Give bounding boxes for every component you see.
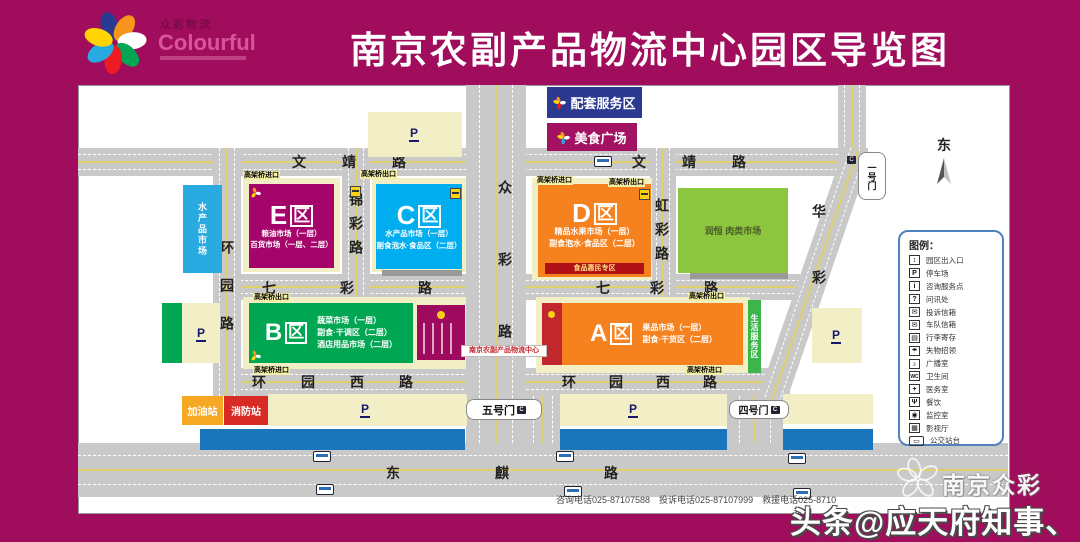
gate-5-label: 五号门 bbox=[482, 402, 515, 418]
compass-east-label: 东 bbox=[933, 135, 955, 155]
park-entrance-icon: ↕ bbox=[909, 255, 920, 265]
zone-e-line1: 粮油市场（一层） bbox=[262, 228, 322, 239]
road-label-dongqi: 东麒路 bbox=[386, 466, 713, 480]
legend-item: ♪广播室 bbox=[909, 357, 1002, 370]
bus-stop-icon bbox=[316, 484, 334, 495]
legend-item: ↕园区出入口 bbox=[909, 254, 1002, 267]
legend-item: WC卫生间 bbox=[909, 370, 1002, 383]
bus-platform-icon: ▭ bbox=[909, 436, 924, 446]
company-sign-box bbox=[417, 305, 465, 360]
gate-4-label: 四号门 bbox=[739, 402, 769, 417]
legend-title: 图例： bbox=[909, 237, 1002, 252]
parking-icon: P bbox=[360, 403, 370, 418]
gate-1-label: 一号门 bbox=[866, 163, 879, 190]
aquatic-market-label: 水产品市场 bbox=[196, 202, 209, 257]
page-title: 南京农副产品物流中心园区导览图 bbox=[300, 20, 1000, 74]
colourful-mini-logo-icon bbox=[557, 131, 570, 144]
cinema-hall-icon: ▦ bbox=[909, 423, 920, 433]
ramp-entry-label: 高架桥进口 bbox=[243, 171, 280, 180]
road-label-huanyuan: 环园路 bbox=[220, 240, 234, 354]
camera-icon: C bbox=[847, 156, 856, 164]
bus-platform-bar bbox=[200, 429, 465, 450]
ramp-exit-label: 高架桥出口 bbox=[253, 293, 290, 302]
broadcast-room-icon: ♪ bbox=[909, 359, 920, 369]
ramp-exit-label: 高架桥出口 bbox=[360, 170, 397, 179]
bridge-icon bbox=[450, 188, 461, 199]
bridge-icon bbox=[639, 189, 650, 200]
company-sign-text-marks bbox=[423, 323, 459, 354]
bus-stop-icon bbox=[788, 453, 806, 464]
food-plaza-box: 美食广场 bbox=[547, 123, 637, 151]
ramp-entry-label: 高架桥进口 bbox=[536, 176, 573, 185]
zone-a: A区 果品市场（一层） 副食·干货区（二层） bbox=[542, 303, 743, 365]
gate-4: 四号门C bbox=[729, 400, 789, 419]
parking-lot-icon: P bbox=[909, 268, 920, 278]
gate-1: 一号门 bbox=[858, 152, 886, 200]
zone-a-line1: 果品市场（一层） bbox=[642, 322, 706, 334]
shadow-runheng bbox=[690, 273, 788, 279]
center-banner: 南京农副产品物流中心 bbox=[461, 345, 547, 357]
info-service-icon: i bbox=[909, 281, 920, 291]
legend-item: ◉监控室 bbox=[909, 409, 1002, 422]
legend-item: ✉车队信箱 bbox=[909, 318, 1002, 331]
zone-b: B区 蔬菜市场（一层） 副食·干调区（二层） 酒店用品市场（二层） bbox=[249, 303, 413, 363]
gas-station: 加油站 bbox=[182, 396, 223, 425]
colourful-flower-icon bbox=[82, 61, 148, 78]
bus-platform-bar bbox=[560, 429, 727, 450]
fire-station: 消防站 bbox=[224, 396, 268, 425]
bus-stop-icon bbox=[594, 156, 612, 167]
camera-icon: C bbox=[771, 406, 780, 414]
aquatic-market: 水产品市场 bbox=[183, 185, 222, 273]
parking-west-green-strip bbox=[162, 303, 182, 363]
monitor-room-icon: ◉ bbox=[909, 410, 920, 420]
watermark-byline: 头条@应天府知事、 bbox=[790, 497, 1077, 542]
zone-b-line1: 蔬菜市场（一层） bbox=[317, 315, 381, 327]
bus-stop-icon bbox=[556, 451, 574, 462]
zone-b-title: B区 bbox=[265, 321, 307, 345]
legend-item: ✉投诉信箱 bbox=[909, 306, 1002, 319]
road-label-zhongcai: 众彩路 bbox=[498, 180, 512, 396]
colourful-mini-logo-icon bbox=[250, 350, 261, 361]
watermark-flower-icon bbox=[896, 455, 940, 499]
ramp-exit-label: 高架桥出口 bbox=[688, 292, 725, 301]
zone-d-huimin-strip: 食品惠民专区 bbox=[545, 263, 644, 274]
zone-e: E区 粮油市场（一层） 百货市场（一层、二层） bbox=[249, 184, 334, 268]
runheng-meat-market: 润恒 肉类市场 bbox=[678, 188, 788, 273]
complaint-mailbox-icon: ✉ bbox=[909, 307, 920, 317]
zone-c-line2: 副食泡水·食品区（二层） bbox=[377, 240, 462, 251]
zone-a-line2: 副食·干货区（二层） bbox=[642, 334, 717, 346]
watermark-brand: 南京众彩 bbox=[942, 466, 1042, 500]
road-label-qicai-right: 七彩路 bbox=[596, 281, 758, 295]
colourful-mini-logo-icon bbox=[250, 187, 261, 198]
legend-item: ▤行李寄存 bbox=[909, 331, 1002, 344]
legend-box: 图例： ↕园区出入口 P停车场 i咨询服务点 ?问讯处 ✉投诉信箱 ✉车队信箱 … bbox=[898, 230, 1004, 446]
legend-item: ▦影视厅 bbox=[909, 422, 1002, 435]
bus-platform-bar bbox=[783, 429, 873, 450]
parking-south-3 bbox=[783, 394, 873, 424]
fire-station-label: 消防站 bbox=[231, 403, 261, 418]
parking-icon: P bbox=[409, 127, 419, 142]
inquiry-icon: ? bbox=[909, 294, 920, 304]
legend-item: i咨询服务点 bbox=[909, 280, 1002, 293]
legend-item: Ψ餐饮 bbox=[909, 396, 1002, 409]
life-service-label: 生活服务区 bbox=[749, 314, 760, 359]
gas-station-label: 加油站 bbox=[188, 403, 218, 418]
zone-d-title: D区 bbox=[572, 200, 617, 226]
toilet-icon: WC bbox=[909, 371, 920, 381]
road-label-wenjing-left: 文靖路 bbox=[292, 155, 442, 169]
compass-needle-icon bbox=[933, 155, 955, 187]
zone-b-line3: 酒店用品市场（二层） bbox=[317, 339, 397, 351]
bridge-icon bbox=[350, 186, 361, 197]
zone-b-line2: 副食·干调区（二层） bbox=[317, 327, 392, 339]
legend-item: P停车场 bbox=[909, 267, 1002, 280]
service-area-label: 配套服务区 bbox=[570, 93, 635, 112]
zone-e-title: E区 bbox=[270, 202, 313, 228]
legend-item: ☂失物招领 bbox=[909, 344, 1002, 357]
logo-en-text: Colourful bbox=[158, 30, 256, 56]
zone-d: D区 精品水果市场（一层） 副食泡水·食品区（二层） 食品惠民专区 bbox=[538, 184, 651, 277]
legend-item: +医务室 bbox=[909, 383, 1002, 396]
food-plaza-label: 美食广场 bbox=[574, 128, 626, 147]
clinic-icon: + bbox=[909, 384, 920, 394]
ramp-entry-label: 高架桥进口 bbox=[253, 366, 290, 375]
gate-5: 五号门C bbox=[466, 399, 542, 420]
camera-icon: C bbox=[517, 406, 526, 414]
ramp-exit-label: 高架桥出口 bbox=[608, 178, 645, 187]
colourful-logo: 众彩物流 Colourful bbox=[82, 6, 312, 80]
road-label-wenjing-right: 文靖路 bbox=[632, 155, 782, 169]
parking-icon: P bbox=[628, 403, 638, 418]
logo-tagline bbox=[160, 56, 246, 60]
road-label-huanyuanxi-left: 环园西路 bbox=[252, 375, 448, 389]
road-label-huanyuanxi-right: 环园西路 bbox=[562, 375, 750, 389]
compass: 东 bbox=[933, 135, 955, 190]
parking-icon: P bbox=[831, 329, 841, 344]
road-label-qicai-left: 七彩路 bbox=[262, 281, 496, 295]
legend-item: ?问讯处 bbox=[909, 293, 1002, 306]
road-label-hongcai: 虹彩路 bbox=[655, 198, 669, 270]
parking-south-2 bbox=[560, 394, 727, 426]
zone-d-line2: 副食泡水·食品区（二层） bbox=[549, 238, 640, 250]
zone-d-line1: 精品水果市场（一层） bbox=[555, 226, 635, 238]
fleet-mailbox-icon: ✉ bbox=[909, 320, 920, 330]
legend-item: ▭公交站台 bbox=[909, 434, 1002, 447]
luggage-storage-icon: ▤ bbox=[909, 333, 920, 343]
shadow-zone-c bbox=[382, 270, 462, 276]
zone-c-title: C区 bbox=[397, 202, 442, 228]
service-area-box: 配套服务区 bbox=[547, 87, 642, 118]
ramp-entry-label: 高架桥进口 bbox=[686, 366, 723, 375]
road-zhongcai bbox=[466, 85, 526, 443]
zone-c-line1: 水产品市场（一层） bbox=[385, 228, 453, 239]
bus-stop-icon bbox=[313, 451, 331, 462]
runheng-label: 润恒 肉类市场 bbox=[705, 224, 762, 237]
colourful-mini-logo-icon bbox=[553, 96, 566, 109]
zone-a-title: A区 bbox=[590, 322, 632, 346]
restaurant-icon: Ψ bbox=[909, 397, 920, 407]
lost-found-icon: ☂ bbox=[909, 346, 920, 356]
road-label-jincai: 锦彩路 bbox=[349, 192, 363, 264]
parking-icon: P bbox=[196, 327, 206, 342]
zone-e-line2: 百货市场（一层、二层） bbox=[250, 239, 333, 250]
life-service-strip: 生活服务区 bbox=[748, 300, 761, 373]
